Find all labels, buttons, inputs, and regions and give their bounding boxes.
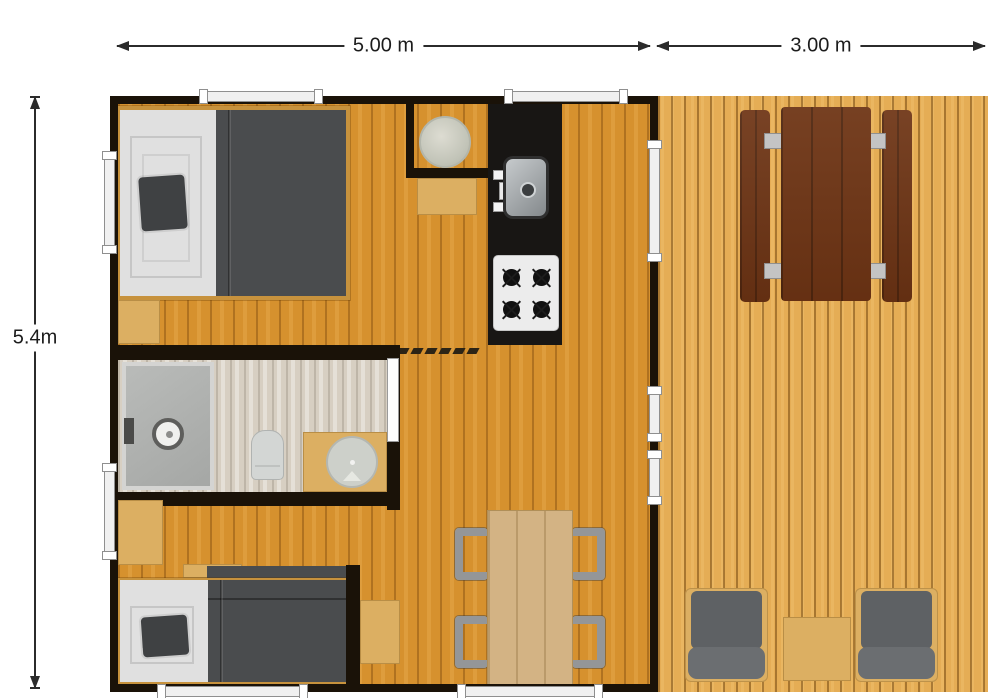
window-cap — [102, 151, 117, 160]
window-cap — [647, 140, 662, 149]
window-cap — [102, 551, 117, 560]
chair-seat-cushion — [858, 647, 935, 679]
picnic-table-top — [781, 107, 871, 301]
stove-burner — [533, 301, 550, 318]
cabin — [110, 96, 658, 692]
dining-chair — [455, 616, 488, 668]
dining-chair — [455, 528, 488, 580]
wall-bedroom1-bathroom — [110, 345, 400, 360]
nightstand — [118, 300, 160, 344]
dimension-label-main: 5.00 m — [344, 35, 423, 58]
dining-table — [487, 510, 573, 686]
shower — [122, 362, 214, 490]
shower-faucet — [124, 418, 134, 444]
stove-burner — [503, 301, 520, 318]
arrow-down-icon — [30, 676, 40, 689]
window-bottom-bedroom2 — [158, 686, 307, 697]
window-cap — [504, 89, 513, 104]
chair-back-cushion — [691, 591, 762, 649]
accordion-door — [398, 348, 436, 354]
arrow-up-icon — [30, 96, 40, 109]
window-top-kitchen — [505, 91, 627, 102]
stove-burner — [503, 269, 520, 286]
dimension-label-deck: 3.00 m — [781, 35, 860, 58]
deck-terrace — [658, 96, 988, 692]
window-top-bedroom1 — [200, 91, 322, 102]
vanity-basin — [326, 436, 378, 488]
closet-wall-bottom — [406, 168, 488, 178]
picnic-bench-right — [882, 110, 912, 302]
closet-wall-left — [406, 96, 414, 178]
kitchen-sink — [503, 156, 549, 219]
window-cap — [102, 463, 117, 472]
accordion-door — [440, 348, 478, 354]
window-cap — [299, 684, 308, 698]
window-cap — [619, 89, 628, 104]
window-bottom-living — [458, 686, 602, 697]
wardrobe — [118, 500, 163, 565]
deck-door-upper — [649, 387, 660, 441]
window-right-kitchen — [649, 141, 660, 261]
window-cap — [647, 253, 662, 262]
arrow-right-icon — [973, 41, 986, 51]
water-heater — [419, 116, 471, 168]
window-cap — [647, 450, 662, 459]
dimension-label-height: 5.4m — [9, 325, 61, 352]
dining-chair — [572, 616, 605, 668]
chair-seat-cushion — [688, 647, 765, 679]
dimension-line — [34, 97, 36, 688]
wall-bedroom2-right — [346, 565, 360, 684]
sink-drain — [520, 182, 536, 198]
living-side-table — [360, 600, 400, 664]
deck-door-lower — [649, 451, 660, 504]
window-cap — [102, 245, 117, 254]
window-cap — [157, 684, 166, 698]
double-bed-pillow — [138, 174, 188, 231]
window-cap — [647, 433, 662, 442]
window-cap — [594, 684, 603, 698]
window-cap — [457, 684, 466, 698]
window-cap — [647, 496, 662, 505]
arrow-right-icon — [638, 41, 651, 51]
double-bed-duvet — [216, 110, 346, 296]
window-left-bedroom1 — [104, 152, 115, 253]
stove — [493, 255, 559, 331]
stove-burner — [533, 269, 550, 286]
chair-back-cushion — [861, 591, 932, 649]
single-bed-pillow — [141, 614, 190, 657]
floorplan-canvas: 5.00 m 3.00 m 5.4m — [0, 0, 1000, 698]
toilet — [251, 430, 284, 480]
vanity-counter — [303, 432, 387, 492]
dining-chair — [572, 528, 605, 580]
deck-side-table — [783, 617, 851, 681]
window-cap — [314, 89, 323, 104]
single-bed-duvet — [208, 580, 348, 682]
window-cap — [199, 89, 208, 104]
kitchen-nook-table — [417, 178, 477, 215]
arrow-left-icon — [656, 41, 669, 51]
arrow-left-icon — [116, 41, 129, 51]
window-cap — [647, 386, 662, 395]
deck-armchair-left — [685, 588, 768, 682]
shower-head — [152, 418, 184, 450]
window-left-bedroom2 — [104, 464, 115, 559]
deck-armchair-right — [855, 588, 938, 682]
bathroom-door — [387, 358, 399, 442]
